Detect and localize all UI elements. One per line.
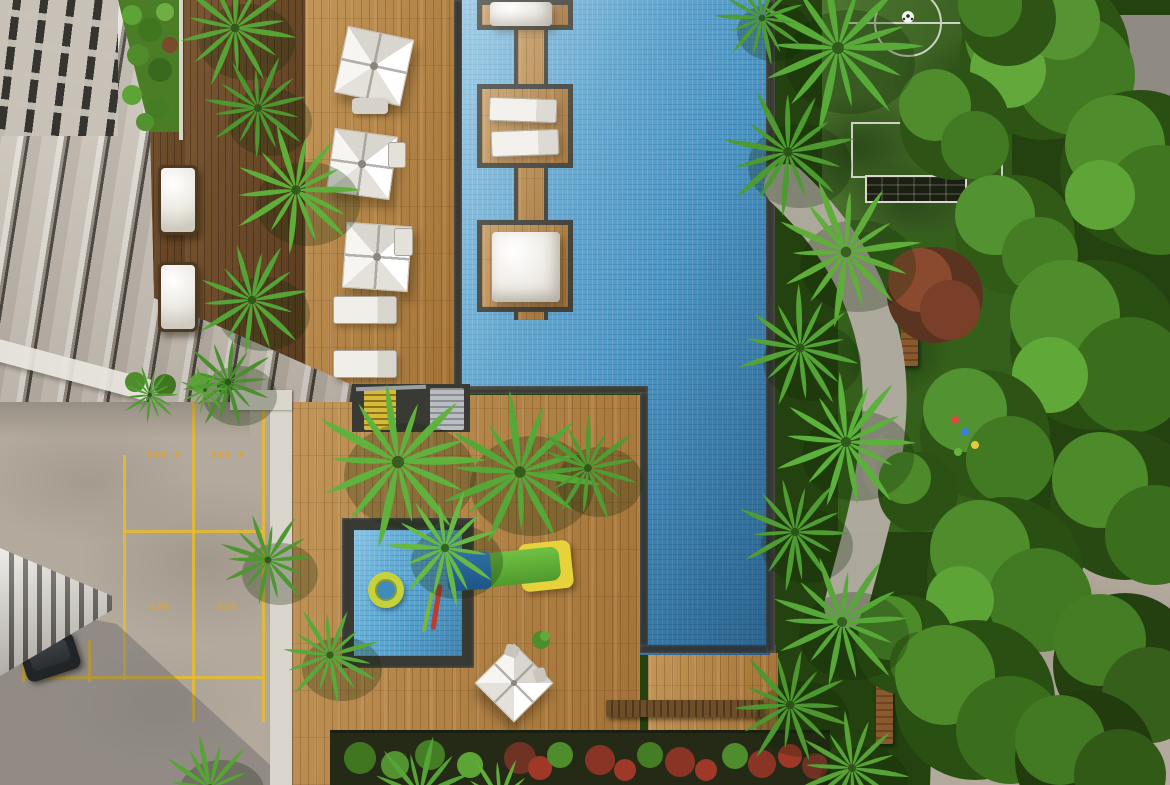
garden-curb-right <box>179 0 183 140</box>
sun-umbrella-1 <box>334 26 415 107</box>
palm-tree <box>752 531 927 705</box>
kids-slide-blue <box>446 551 493 592</box>
parking-stall-label: 338-A <box>141 451 187 463</box>
pool-coping-right <box>766 0 775 652</box>
stall-line-v1 <box>123 455 126 680</box>
pool-coping-left <box>454 0 462 392</box>
pool-coping-bottom <box>640 645 776 653</box>
umbrella-seat-2 <box>388 142 406 168</box>
parking-stall-label: 338 <box>139 602 179 614</box>
deck-bench <box>606 700 764 717</box>
stall-line-h1 <box>123 530 265 533</box>
canopy-daybed-top <box>490 2 552 26</box>
deck-lounger-1 <box>333 296 397 324</box>
swim-ring <box>368 572 404 608</box>
stall-line-v3 <box>262 392 265 722</box>
upper-right-pavement <box>1095 15 1170 145</box>
aerial-courtyard-render: 338-A 339-A 338 339 <box>0 0 1170 785</box>
building-window-grid <box>0 0 118 136</box>
terrace-daybed-1 <box>158 165 198 235</box>
parking-stall-label: 339 <box>207 602 247 614</box>
umbrella-table-1 <box>352 98 388 114</box>
island-lounger-2 <box>491 129 560 157</box>
deck-lounger-2 <box>333 350 397 378</box>
yellow-slat-lounger <box>364 388 396 430</box>
stall-line-v2 <box>192 392 195 722</box>
flower-planter <box>330 730 830 785</box>
stall-line-v5 <box>88 640 91 682</box>
patio-bench <box>876 670 893 744</box>
deck-boundary-wall <box>270 390 292 785</box>
pool-coping-inner <box>640 392 648 652</box>
bottom-right-patio <box>930 540 1170 785</box>
island-lounger-1 <box>489 97 558 123</box>
canopy-daybed-lower <box>492 232 560 302</box>
soccer-field <box>822 0 1012 238</box>
gray-slat-lounger <box>430 388 464 430</box>
path-bench <box>901 294 918 366</box>
umbrella-seat-3 <box>394 228 413 256</box>
deck-boundary-wall-corner <box>230 390 292 410</box>
stall-line-h2 <box>22 676 265 679</box>
play-structure <box>942 395 1001 466</box>
terrace-daybed-2 <box>158 262 198 332</box>
playground-lawn <box>838 232 1023 532</box>
pool-coping-step <box>454 386 648 394</box>
pool-deck-bottom-right <box>648 653 778 733</box>
parking-stall-label: 339-A <box>205 451 251 463</box>
